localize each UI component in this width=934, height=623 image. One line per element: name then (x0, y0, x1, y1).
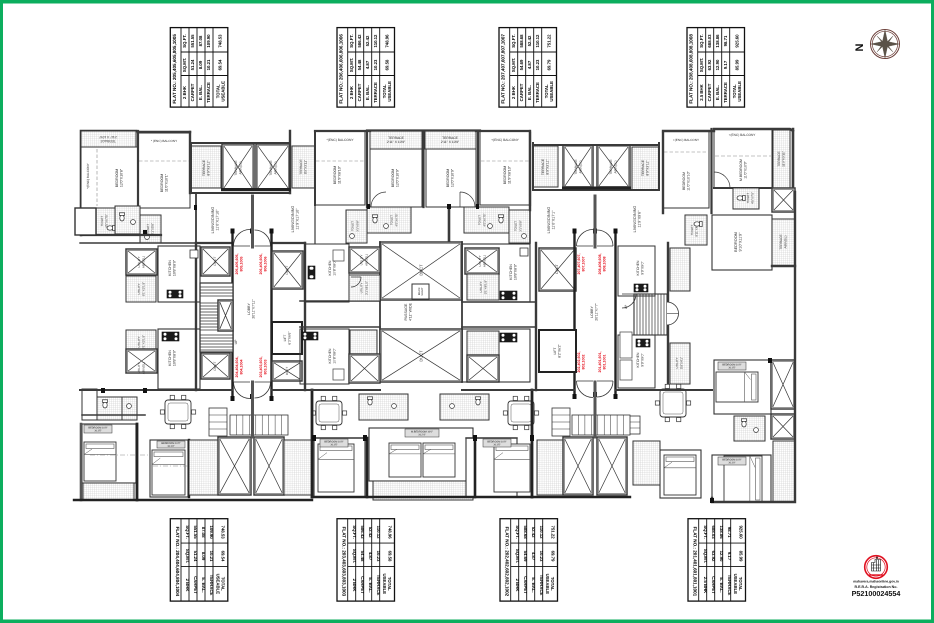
svg-text:11'0"X10'10": 11'0"X10'10" (687, 170, 691, 190)
svg-text:UTILITY: UTILITY (137, 336, 141, 347)
svg-text:551.55: 551.55 (190, 34, 195, 48)
svg-text:3'1"X8'1.5": 3'1"X8'1.5" (364, 281, 368, 295)
svg-text:8.09: 8.09 (201, 552, 206, 561)
svg-text:2'11" X 10'6": 2'11" X 10'6" (99, 135, 117, 139)
svg-text:4'5"X7'5": 4'5"X7'5" (750, 192, 754, 204)
svg-text:TERRACE: TERRACE (206, 82, 211, 103)
svg-text:DUCT: DUCT (418, 350, 423, 362)
svg-text:M.BEDROOM: M.BEDROOM (739, 159, 743, 181)
svg-text:12'0"X10'9": 12'0"X10'9" (451, 168, 455, 187)
svg-text:10'8"X8'0": 10'8"X8'0" (173, 259, 177, 276)
svg-text:11'0"X17'10": 11'0"X17'10" (216, 209, 220, 231)
svg-text:BEDROOM: BEDROOM (682, 172, 686, 190)
svg-text:X11'5": X11'5" (728, 366, 735, 369)
svg-text:USEABLE: USEABLE (545, 574, 550, 595)
svg-text:751.22: 751.22 (546, 34, 551, 48)
svg-text:4.87: 4.87 (365, 60, 370, 69)
svg-text:N: N (854, 43, 866, 51)
svg-text:E. BAL.: E. BAL. (527, 85, 532, 100)
svg-text:+(ENC) BALCONY: +(ENC) BALCONY (673, 138, 699, 142)
svg-text:DUCT: DUCT (285, 266, 289, 275)
svg-text:TERRACE: TERRACE (777, 151, 781, 166)
svg-text:TERRACE: TERRACE (373, 82, 378, 103)
svg-text:BEDROOM: BEDROOM (734, 232, 738, 252)
svg-text:+(ENC) BALCONY: +(ENC) BALCONY (729, 133, 757, 137)
svg-text:748.53: 748.53 (221, 526, 226, 540)
svg-text:BEDROOM: BEDROOM (446, 169, 450, 188)
svg-text:804,1004: 804,1004 (239, 360, 243, 375)
svg-text:52.42: 52.42 (365, 35, 370, 46)
svg-text:748.96: 748.96 (384, 34, 389, 48)
svg-text:KITCHEN: KITCHEN (636, 352, 640, 367)
svg-text:LIVING/DINING: LIVING/DINING (211, 207, 215, 234)
svg-text:E. BAL.: E. BAL. (368, 577, 373, 592)
svg-text:63.92: 63.92 (707, 59, 712, 70)
svg-text:USEABLE: USEABLE (733, 574, 738, 595)
svg-text:X11'5": X11'5" (330, 443, 337, 446)
svg-text:207,407,607,: 207,407,607, (577, 254, 581, 275)
svg-text:USEABLE: USEABLE (215, 574, 220, 595)
svg-text:LIVING/DINING: LIVING/DINING (291, 206, 295, 233)
svg-text:205,405,605,: 205,405,605, (235, 254, 239, 275)
svg-text:ABV.(EL): ABV.(EL) (482, 255, 486, 267)
svg-text:UTILITY: UTILITY (479, 281, 483, 292)
svg-text:203,403,603,: 203,403,603, (259, 357, 263, 378)
svg-text:2.5 BHK: 2.5 BHK (699, 83, 704, 100)
svg-text:10'8"X8'0": 10'8"X8'0" (332, 348, 336, 364)
svg-text:208,408,608,: 208,408,608, (598, 254, 602, 275)
svg-text:+(ENC) BALCONY: +(ENC) BALCONY (491, 138, 520, 142)
svg-text:maharera.mahaonline.gov.in: maharera.mahaonline.gov.in (853, 580, 899, 584)
svg-text:USEABLE: USEABLE (737, 81, 742, 102)
svg-text:51.24: 51.24 (190, 59, 195, 70)
svg-text:BEDROOM: BEDROOM (333, 166, 337, 185)
svg-text:P52100024554: P52100024554 (852, 589, 901, 598)
svg-text:54.48: 54.48 (360, 551, 365, 562)
svg-text:SQ.FT.: SQ.FT. (185, 525, 190, 538)
svg-text:*(ENC) BALCONY: *(ENC) BALCONY (326, 138, 354, 142)
svg-text:10'8"X8'0": 10'8"X8'0" (514, 263, 518, 280)
svg-text:11'9"X8'10": 11'9"X8'10" (508, 165, 512, 184)
svg-text:UTILITY: UTILITY (675, 357, 679, 368)
svg-text:*(ENC) BALCONY: *(ENC) BALCONY (86, 163, 90, 188)
svg-text:202,402,602,: 202,402,602, (577, 352, 581, 373)
svg-text:586.42: 586.42 (360, 526, 365, 540)
svg-text:TERRACE: TERRACE (609, 159, 613, 174)
svg-text:ABV.(EL): ABV.(EL) (578, 161, 582, 174)
svg-text:806,1006: 806,1006 (263, 257, 267, 272)
svg-text:3'1"X8'1.5": 3'1"X8'1.5" (483, 280, 487, 294)
svg-text:2 BHK: 2 BHK (515, 579, 520, 593)
svg-text:748.96: 748.96 (387, 526, 392, 540)
svg-text:TERRACE: TERRACE (376, 575, 381, 596)
svg-text:8'9"X3'11": 8'9"X3'11" (206, 160, 210, 176)
svg-text:TERRACE: TERRACE (541, 158, 545, 175)
svg-text:USEABLE: USEABLE (387, 81, 392, 102)
svg-text:4'11" WIDE: 4'11" WIDE (409, 302, 413, 321)
svg-text:11'0"X10'1": 11'0"X10'1" (165, 173, 169, 192)
svg-text:69.79: 69.79 (546, 59, 551, 70)
svg-text:TERRACE: TERRACE (209, 575, 214, 596)
svg-text:FLAT NO.: 202,402,602,802,1002: FLAT NO.: 202,402,602,802,1002 (505, 527, 510, 597)
svg-text:98.71: 98.71 (723, 35, 728, 46)
svg-text:801,1001: 801,1001 (602, 355, 606, 370)
svg-text:BEDROOM: BEDROOM (503, 166, 507, 185)
svg-text:12'0"X10'9": 12'0"X10'9" (396, 168, 400, 187)
svg-text:BEDROOM: BEDROOM (160, 174, 164, 193)
svg-text:204,404,604,: 204,404,604, (235, 357, 239, 378)
svg-text:10.23: 10.23 (373, 59, 378, 70)
svg-text:2'11" X 10'9": 2'11" X 10'9" (441, 140, 460, 144)
svg-text:12.90: 12.90 (715, 59, 720, 70)
svg-text:10.21: 10.21 (206, 59, 211, 70)
svg-text:9'9"X9'0": 9'9"X9'0" (640, 352, 644, 366)
svg-text:UTILITY: UTILITY (478, 255, 482, 266)
svg-text:E. BAL.: E. BAL. (201, 577, 206, 592)
svg-text:10.23: 10.23 (539, 551, 544, 562)
svg-text:SQ.MT.: SQ.MT. (185, 549, 190, 563)
svg-text:6'1"X3'1.5": 6'1"X3'1.5" (141, 282, 145, 296)
svg-text:9'10"X11'9": 9'10"X11'9" (739, 232, 743, 252)
svg-text:FLAT NO.: 201,401,601,801,1001: FLAT NO.: 201,401,601,801,1001 (693, 527, 698, 597)
svg-text:54.69: 54.69 (519, 59, 524, 70)
svg-text:688.03: 688.03 (711, 526, 716, 540)
svg-text:LIVING/DINING: LIVING/DINING (547, 207, 551, 234)
svg-text:9'9"X9'0": 9'9"X9'0" (640, 260, 644, 274)
svg-text:4.87: 4.87 (531, 552, 536, 561)
svg-text:52.42: 52.42 (527, 35, 532, 46)
svg-text:63.92: 63.92 (711, 551, 716, 562)
svg-text:SQ.MT.: SQ.MT. (182, 58, 187, 72)
svg-text:DUCT: DUCT (213, 257, 217, 266)
svg-text:ABV.(EL): ABV.(EL) (273, 162, 277, 175)
svg-text:8.09: 8.09 (198, 60, 203, 69)
svg-text:SQ.FT.: SQ.FT. (703, 525, 708, 538)
svg-text:FLAT NO.: 206,406,606,806,1006: FLAT NO.: 206,406,606,806,1006 (339, 34, 344, 104)
svg-text:SQ.FT.: SQ.FT. (699, 34, 704, 47)
svg-text:SQ.FT.: SQ.FT. (352, 525, 357, 538)
svg-text:2 BHK: 2 BHK (352, 579, 357, 593)
svg-text:CARPET: CARPET (707, 83, 712, 101)
svg-text:85.99: 85.99 (734, 59, 739, 70)
svg-text:110.12: 110.12 (376, 526, 381, 540)
svg-text:925.60: 925.60 (734, 34, 739, 48)
svg-text:TERRACE: TERRACE (299, 159, 303, 174)
svg-text:LIVING/DINING: LIVING/DINING (633, 206, 637, 233)
svg-text:551.55: 551.55 (193, 526, 198, 540)
svg-text:FLAT NO.: 205,405,605,805,1005: FLAT NO.: 205,405,605,805,1005 (172, 34, 177, 104)
svg-text:UTILITY: UTILITY (360, 283, 364, 294)
svg-text:807,1007: 807,1007 (581, 257, 585, 272)
svg-text:TERRACE: TERRACE (539, 575, 544, 596)
svg-text:ABV.(EL): ABV.(EL) (238, 162, 242, 175)
svg-text:BEDROOM: BEDROOM (391, 169, 395, 188)
svg-text:TERRACE: TERRACE (723, 82, 728, 103)
svg-text:4'5"X6'75": 4'5"X6'75" (104, 214, 108, 228)
svg-text:SQ.FT.: SQ.FT. (349, 34, 354, 47)
svg-text:201,401,601,: 201,401,601, (598, 352, 602, 373)
svg-text:69.54: 69.54 (221, 551, 226, 562)
svg-text:USEABLE: USEABLE (382, 574, 387, 595)
svg-text:E. BAL.: E. BAL. (365, 85, 370, 100)
svg-text:69.79: 69.79 (550, 551, 555, 562)
svg-text:688.03: 688.03 (707, 34, 712, 48)
svg-text:KITCHEN: KITCHEN (636, 260, 640, 275)
svg-text:206,406,606,: 206,406,606, (259, 254, 263, 275)
svg-text:FLAT NO.: 208,408,608,808,1008: FLAT NO.: 208,408,608,808,1008 (689, 34, 694, 104)
svg-text:20'11"X7'7": 20'11"X7'7" (595, 302, 599, 320)
svg-text:805,1005: 805,1005 (239, 257, 243, 272)
svg-text:87.08: 87.08 (198, 35, 203, 46)
svg-text:DUCT: DUCT (418, 264, 423, 276)
svg-text:12'0"X10'8": 12'0"X10'8" (120, 168, 124, 187)
svg-text:11'9"X17'10": 11'9"X17'10" (296, 208, 300, 230)
svg-text:803,1003: 803,1003 (263, 360, 267, 375)
svg-text:2 BHK: 2 BHK (511, 85, 516, 99)
svg-text:138.86: 138.86 (715, 34, 720, 48)
svg-text:SQ.MT.: SQ.MT. (515, 549, 520, 563)
svg-text:USEABLE: USEABLE (549, 81, 554, 102)
svg-text:8'2"X6'2": 8'2"X6'2" (557, 343, 561, 357)
svg-text:110.12: 110.12 (373, 34, 378, 48)
svg-text:TERRACE: TERRACE (779, 234, 783, 249)
svg-text:SQ.FT.: SQ.FT. (511, 34, 516, 47)
svg-text:KITCHEN: KITCHEN (168, 350, 172, 366)
svg-text:ABV.(EL): ABV.(EL) (141, 362, 145, 374)
svg-text:CARPET: CARPET (519, 83, 524, 101)
svg-text:X11'0": X11'0" (167, 445, 174, 448)
svg-text:11'0"X10'9": 11'0"X10'9" (744, 160, 748, 178)
svg-text:6'3"X6'6": 6'3"X6'6" (287, 331, 291, 345)
svg-text:TERRACE: TERRACE (535, 82, 540, 103)
svg-text:UTILITY: UTILITY (360, 255, 364, 266)
svg-text:ABV.(EL): ABV.(EL) (613, 161, 617, 174)
svg-text:69.58: 69.58 (387, 551, 392, 562)
svg-text:9.17: 9.17 (727, 552, 732, 561)
svg-text:748.53: 748.53 (218, 34, 223, 48)
svg-text:E. BAL.: E. BAL. (531, 577, 536, 592)
svg-text:2'11" X 10'9": 2'11" X 10'9" (387, 140, 406, 144)
svg-text:KITCHEN: KITCHEN (509, 264, 513, 280)
svg-text:54.48: 54.48 (357, 59, 362, 70)
svg-text:52.42: 52.42 (368, 527, 373, 538)
svg-text:SHAFT: SHAFT (421, 287, 424, 296)
svg-text:8'9"X3'11": 8'9"X3'11" (645, 160, 649, 176)
svg-text:CARPET: CARPET (193, 576, 198, 594)
svg-text:3'1"X5'8": 3'1"X5'8" (355, 220, 359, 232)
svg-text:110.12: 110.12 (539, 526, 544, 540)
svg-text:SQ.FT.: SQ.FT. (515, 525, 520, 538)
svg-text:FLAT NO.: 204,404,604,804,1004: FLAT NO.: 204,404,604,804,1004 (175, 527, 180, 597)
svg-text:KITCHEN: KITCHEN (168, 260, 172, 276)
svg-text:5'9"X4'1": 5'9"X4'1" (679, 357, 683, 369)
svg-text:925.60: 925.60 (738, 526, 743, 540)
svg-text:2 BHK: 2 BHK (185, 579, 190, 593)
svg-text:109.90: 109.90 (206, 34, 211, 48)
svg-text:LOBBY: LOBBY (247, 303, 251, 315)
svg-text:2 BHK: 2 BHK (182, 85, 187, 99)
svg-text:11'9"X3'11": 11'9"X3'11" (781, 151, 785, 167)
svg-text:4.87: 4.87 (368, 552, 373, 561)
svg-text:UP: UP (624, 305, 628, 309)
svg-text:588.68: 588.68 (519, 34, 524, 48)
svg-text:SQ.MT.: SQ.MT. (349, 58, 354, 72)
svg-text:ABV.(EL): ABV.(EL) (141, 256, 145, 268)
svg-text:69.54: 69.54 (218, 59, 223, 70)
svg-text:SQ.FT.: SQ.FT. (182, 34, 187, 47)
svg-text:10'8"X8'0": 10'8"X8'0" (173, 349, 177, 366)
svg-text:CARPET: CARPET (523, 576, 528, 594)
svg-text:E. BAL.: E. BAL. (715, 85, 720, 100)
svg-text:CARPET: CARPET (711, 576, 716, 594)
svg-text:FLAT NO.: 203,403,603,803,1003: FLAT NO.: 203,403,603,803,1003 (342, 527, 347, 597)
svg-text:KITCHEN: KITCHEN (328, 348, 332, 363)
svg-text:X11'0": X11'0" (728, 461, 735, 464)
svg-text:SQ.MT.: SQ.MT. (511, 58, 516, 72)
svg-text:2.5 BHK: 2.5 BHK (703, 577, 708, 594)
svg-text:586.42: 586.42 (357, 34, 362, 48)
svg-text:X11'5": X11'5" (94, 429, 101, 432)
svg-text:DUCT: DUCT (285, 367, 289, 375)
svg-text:3'1"X5'8": 3'1"X5'8" (150, 223, 154, 235)
svg-text:ABV.(EL): ABV.(EL) (783, 236, 787, 249)
svg-text:4'5"X6'75": 4'5"X6'75" (482, 213, 486, 226)
svg-text:TERRACE: TERRACE (574, 159, 578, 174)
svg-text:FLAT NO.: 207,407,607,807,1007: FLAT NO.: 207,407,607,807,1007 (501, 34, 506, 104)
svg-text:110.12: 110.12 (535, 34, 540, 48)
svg-text:2 BHK: 2 BHK (349, 85, 354, 99)
svg-text:138.86: 138.86 (719, 526, 724, 540)
svg-text:11'9"X9'6": 11'9"X9'6" (638, 210, 642, 228)
svg-text:KITCHEN: KITCHEN (328, 260, 332, 275)
svg-text:ABV.(EL): ABV.(EL) (364, 254, 368, 266)
svg-text:4'5"X6'75": 4'5"X6'75" (394, 213, 398, 226)
svg-text:UTILITY: UTILITY (137, 256, 141, 267)
svg-text:LOBBY: LOBBY (590, 306, 594, 318)
svg-text:X12'4": X12'4" (418, 433, 425, 436)
svg-text:12.90: 12.90 (719, 551, 724, 562)
svg-text:TERRACE: TERRACE (727, 575, 732, 596)
svg-text:UTILITY: UTILITY (137, 362, 141, 373)
svg-text:X11'5": X11'5" (493, 443, 500, 446)
svg-text:802,1002: 802,1002 (581, 355, 585, 370)
svg-text:6'1"X3'1.5": 6'1"X3'1.5" (141, 335, 145, 349)
svg-text:* (ENC) BALCONY: * (ENC) BALCONY (151, 139, 177, 143)
svg-text:51.24: 51.24 (193, 551, 198, 562)
svg-text:TERRACE: TERRACE (269, 160, 273, 175)
svg-text:10.23: 10.23 (535, 59, 540, 70)
svg-text:TOILET: TOILET (746, 193, 750, 204)
svg-text:3'1"X5'8": 3'1"X5'8" (518, 220, 522, 232)
svg-text:8'9"X3'11": 8'9"X3'11" (303, 160, 307, 174)
svg-text:SQ.MT.: SQ.MT. (352, 549, 357, 563)
svg-text:CARPET: CARPET (360, 576, 365, 594)
svg-text:TERRACE: TERRACE (202, 159, 206, 176)
svg-text:8'9"X3'11": 8'9"X3'11" (545, 159, 549, 175)
svg-text:20'11"X7'11": 20'11"X7'11" (252, 299, 256, 319)
svg-text:10.23: 10.23 (376, 551, 381, 562)
svg-text:E. BAL.: E. BAL. (719, 577, 724, 592)
svg-text:109.90: 109.90 (209, 526, 214, 540)
svg-text:85.99: 85.99 (738, 551, 743, 562)
svg-text:DUCT: DUCT (213, 362, 217, 371)
svg-text:11'0"X17'1": 11'0"X17'1" (552, 210, 556, 230)
svg-text:54.69: 54.69 (523, 551, 528, 562)
svg-text:TOILET: TOILET (351, 221, 355, 231)
svg-text:USEABLE: USEABLE (220, 81, 225, 102)
svg-text:69.58: 69.58 (384, 59, 389, 70)
svg-text:TOILET: TOILET (100, 216, 104, 227)
svg-text:87.08: 87.08 (201, 527, 206, 538)
svg-text:TOILET: TOILET (478, 215, 482, 225)
svg-text:52.42: 52.42 (531, 527, 536, 538)
svg-text:CARPET: CARPET (190, 83, 195, 101)
svg-text:LIFT: LIFT (283, 335, 287, 342)
svg-text:DUCT: DUCT (555, 264, 559, 273)
svg-text:4.87: 4.87 (527, 60, 532, 69)
svg-text:CARPET: CARPET (357, 83, 362, 101)
svg-text:TOILET: TOILET (514, 221, 518, 231)
svg-text:TOILET: TOILET (690, 225, 694, 236)
svg-text:BEDROOM: BEDROOM (115, 169, 119, 188)
svg-text:SQ.MT.: SQ.MT. (703, 549, 708, 563)
svg-text:LIFT: LIFT (553, 348, 557, 355)
svg-text:E. BAL.: E. BAL. (198, 85, 203, 100)
svg-text:9.17: 9.17 (723, 60, 728, 69)
svg-text:TOILET: TOILET (390, 215, 394, 225)
svg-text:10'8"X8'0": 10'8"X8'0" (332, 260, 336, 276)
svg-text:751.22: 751.22 (550, 526, 555, 540)
svg-text:SQ.MT.: SQ.MT. (699, 58, 704, 72)
svg-text:UTILITY: UTILITY (137, 283, 141, 294)
svg-text:PASSAGE: PASSAGE (404, 303, 408, 321)
svg-text:TERRACE: TERRACE (234, 160, 238, 175)
svg-text:10.21: 10.21 (209, 551, 214, 562)
svg-text:808,1008: 808,1008 (602, 257, 606, 272)
svg-text:98.71: 98.71 (727, 527, 732, 538)
svg-text:TERRACE: TERRACE (641, 159, 645, 176)
svg-text:UP: UP (234, 339, 238, 344)
svg-text:11'9"X8'10": 11'9"X8'10" (338, 165, 342, 184)
svg-text:588.68: 588.68 (523, 526, 528, 540)
